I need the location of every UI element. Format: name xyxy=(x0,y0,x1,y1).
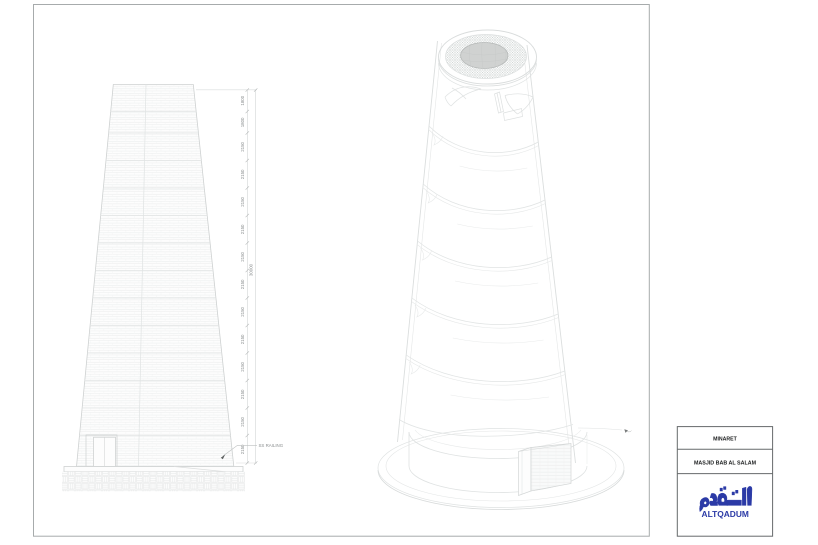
svg-text:2150: 2150 xyxy=(240,169,245,179)
svg-text:2150: 2150 xyxy=(240,334,245,344)
svg-text:2150: 2150 xyxy=(240,251,245,261)
svg-text:1800: 1800 xyxy=(240,95,245,105)
svg-text:2150: 2150 xyxy=(240,196,245,206)
svg-text:2150: 2150 xyxy=(240,361,245,371)
svg-text:30000: 30000 xyxy=(249,263,254,276)
svg-text:2150: 2150 xyxy=(240,141,245,151)
svg-text:MINARET: MINARET xyxy=(713,436,737,442)
svg-text:SS RAILING: SS RAILING xyxy=(259,443,284,448)
svg-text:2150: 2150 xyxy=(240,389,245,399)
svg-text:2150: 2150 xyxy=(240,416,245,426)
svg-text:2150: 2150 xyxy=(240,306,245,316)
svg-text:ALTQADUM: ALTQADUM xyxy=(702,509,749,519)
svg-text:2150: 2150 xyxy=(240,279,245,289)
svg-text:2150: 2150 xyxy=(240,224,245,234)
svg-text:1800: 1800 xyxy=(240,117,245,127)
svg-text:MASJID BAB AL SALAM: MASJID BAB AL SALAM xyxy=(694,460,757,466)
